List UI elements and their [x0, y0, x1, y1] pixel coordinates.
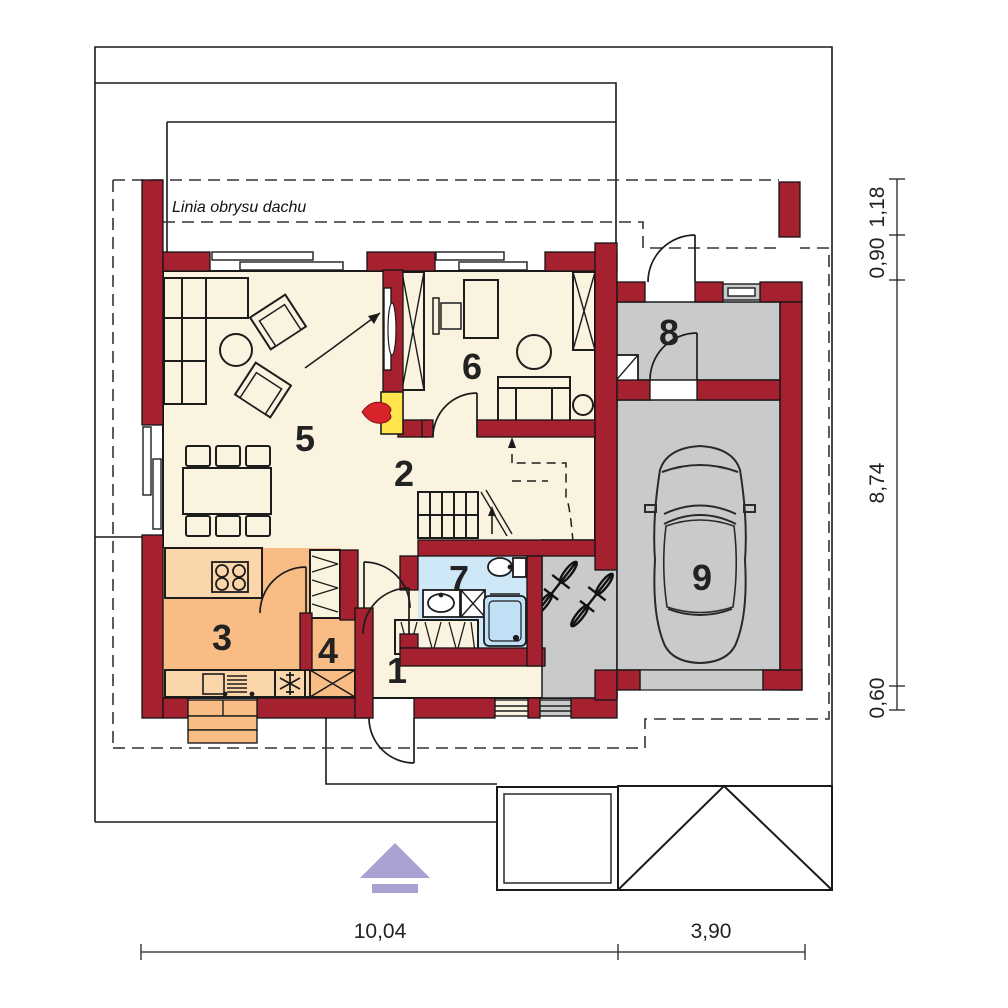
- dim-right-4: 0,60: [866, 678, 889, 719]
- dim-right-1: 1,18: [866, 187, 889, 228]
- room-label-1: 1: [387, 650, 407, 691]
- room-label-4: 4: [318, 630, 338, 671]
- room-label-9: 9: [692, 557, 712, 598]
- room-label-8: 8: [659, 312, 679, 353]
- window: [436, 252, 527, 270]
- room-label-3: 3: [212, 617, 232, 658]
- room-label-5: 5: [295, 418, 315, 459]
- window: [495, 700, 528, 716]
- storage-box-x: [310, 670, 355, 697]
- room-label-6: 6: [462, 346, 482, 387]
- entrance-arrow-icon: [360, 843, 430, 893]
- window: [540, 700, 571, 716]
- dim-right-2: 0,90: [866, 238, 889, 279]
- round-table: [517, 335, 551, 369]
- wardrobe-hangers: [310, 550, 340, 618]
- floor-plan-page: Linia obrysu dachu: [0, 0, 1008, 1008]
- garage-floor: [617, 400, 780, 670]
- dim-right-3: 8,74: [866, 462, 889, 503]
- window: [143, 427, 161, 529]
- dimension-right: [889, 179, 905, 710]
- coffee-table: [220, 334, 252, 366]
- dim-width-garage: 3,90: [691, 920, 732, 943]
- driveway-outline: [618, 786, 832, 890]
- window: [212, 252, 343, 270]
- garage-door-strip: [640, 670, 763, 690]
- shower: [484, 594, 526, 646]
- door-entrance: [369, 718, 414, 763]
- freezer-snowflake-icon: [275, 670, 305, 697]
- dimension-bottom: [141, 944, 805, 960]
- roof-outline-label: Linia obrysu dachu: [172, 199, 306, 216]
- floor-plan-drawing: Linia obrysu dachu: [0, 0, 1008, 1008]
- window: [723, 284, 760, 300]
- wardrobe-x: [402, 272, 424, 390]
- room-label-7: 7: [449, 558, 469, 599]
- door-utility-entry: [648, 235, 695, 282]
- dim-width-house: 10,04: [354, 920, 407, 943]
- toilet: [488, 558, 526, 577]
- utility-floor: [617, 302, 780, 380]
- room-label-2: 2: [394, 453, 414, 494]
- terrace-outline: [497, 787, 618, 890]
- dining-table-set: [183, 446, 271, 536]
- kitchen-steps: [188, 700, 257, 743]
- wardrobe-x: [573, 272, 595, 350]
